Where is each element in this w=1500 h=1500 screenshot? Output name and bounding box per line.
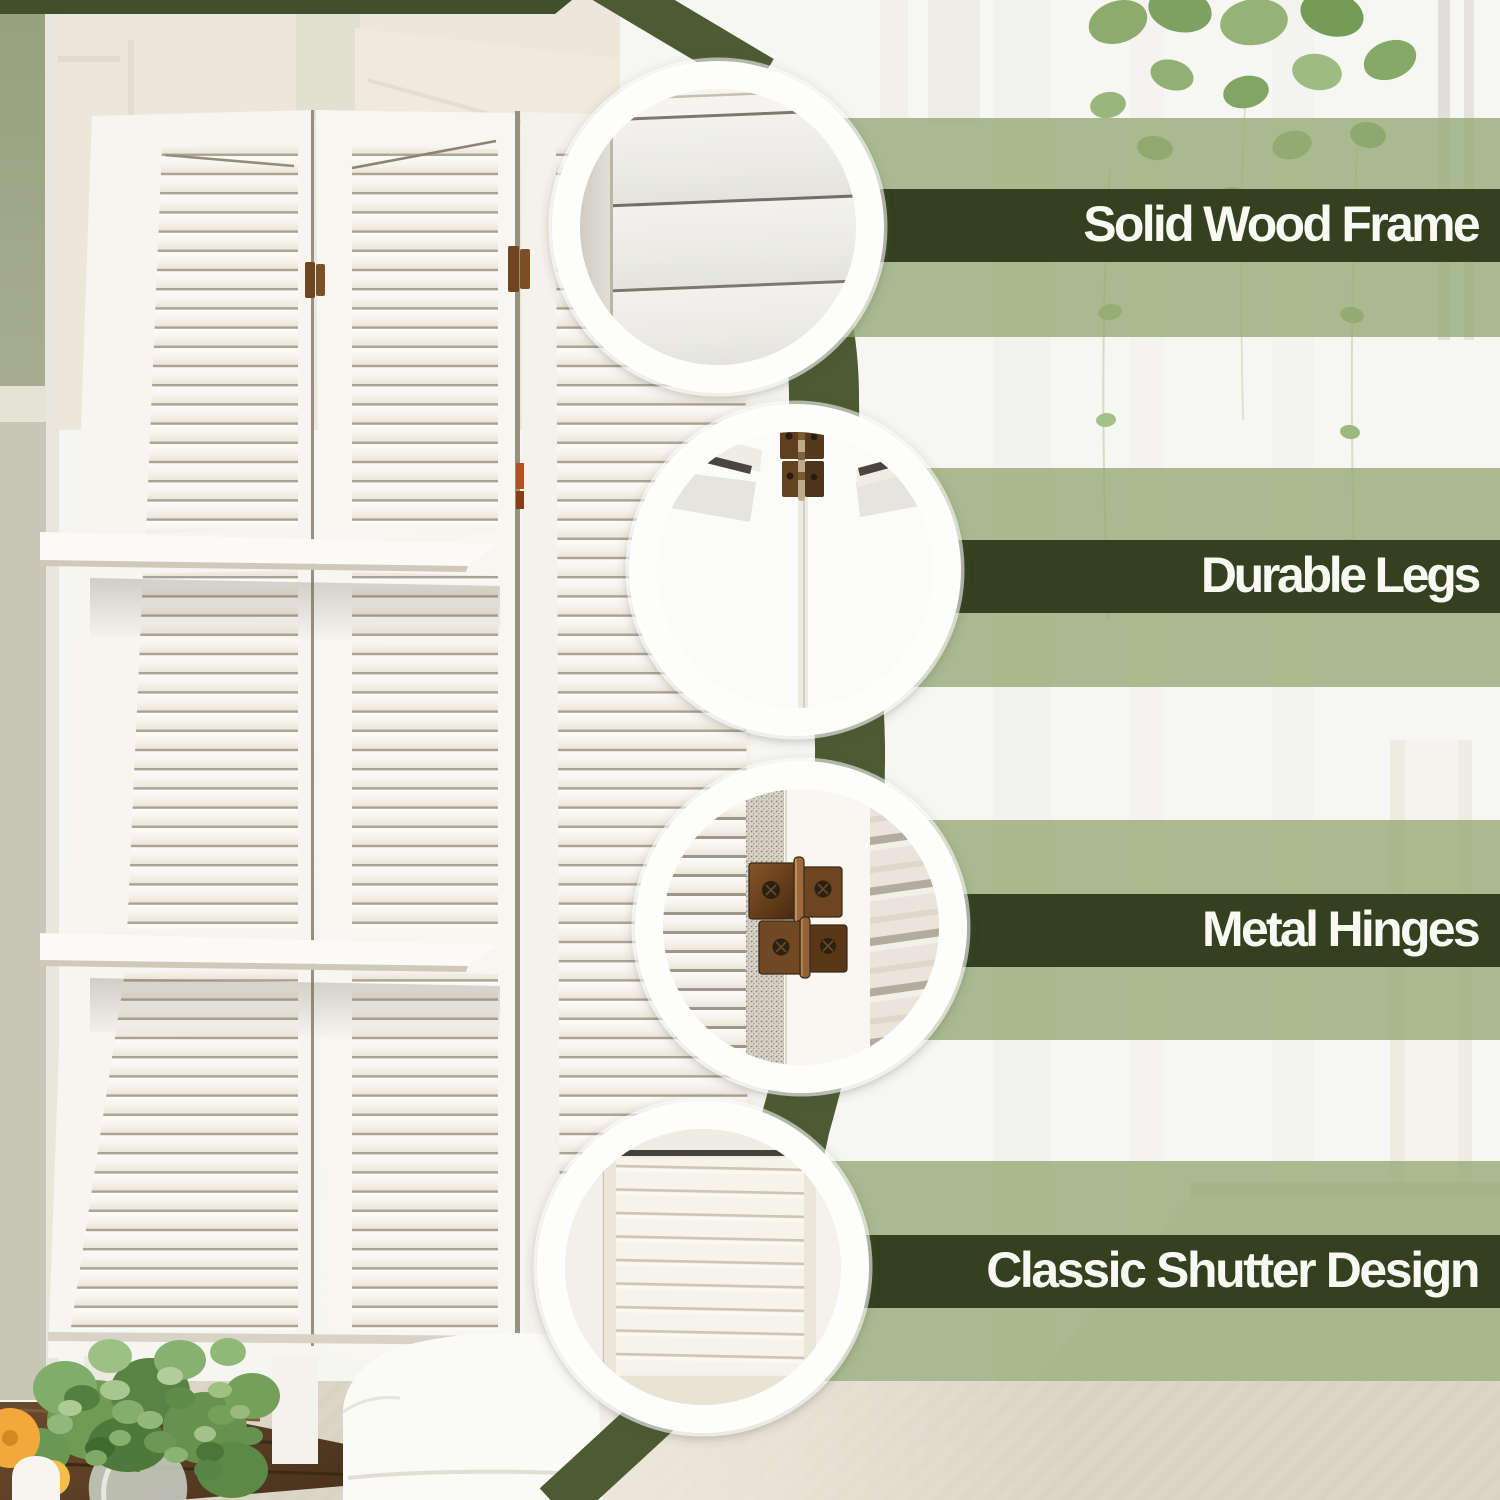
svg-text:Metal Hinges: Metal Hinges [1202, 901, 1479, 957]
svg-text:Solid Wood Frame: Solid Wood Frame [1083, 196, 1480, 252]
svg-text:Durable Legs: Durable Legs [1201, 547, 1480, 603]
svg-text:Classic Shutter Design: Classic Shutter Design [986, 1242, 1478, 1298]
